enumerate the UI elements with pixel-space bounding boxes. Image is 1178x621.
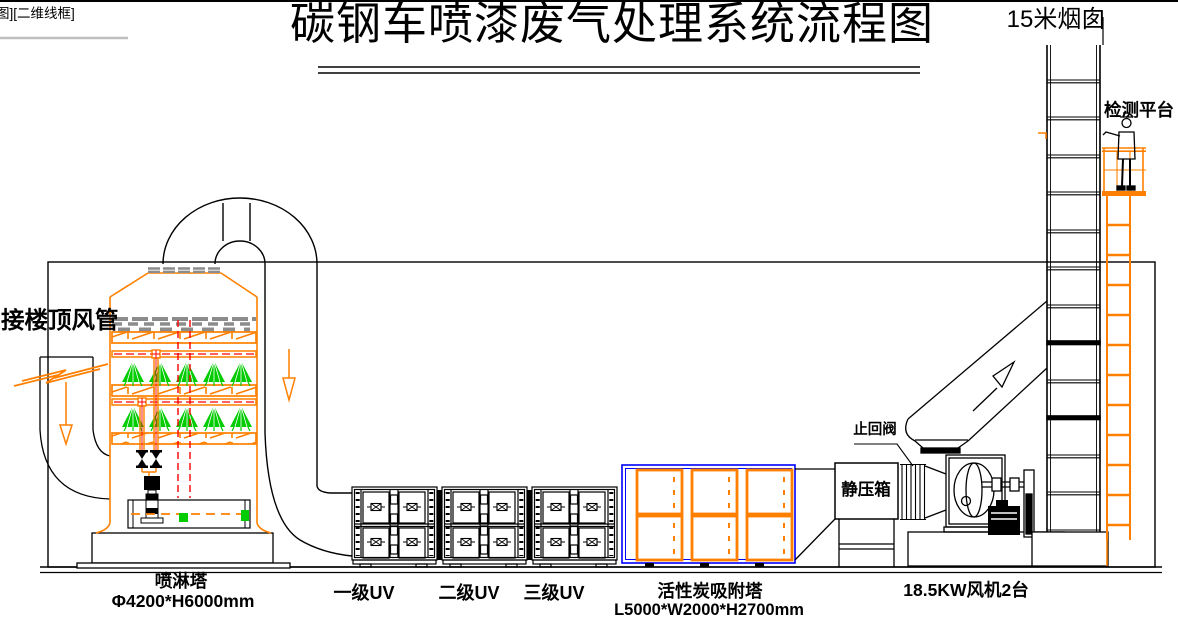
flow-arrow-down-inlet	[60, 382, 72, 444]
chimney	[1032, 17, 1108, 566]
viewport-corner-label: 图][二维线框]	[0, 7, 75, 21]
uv-stage-1-label: 一级UV	[333, 584, 394, 603]
plenum-label: 静压箱	[841, 482, 891, 499]
access-ladder	[1107, 196, 1130, 566]
carbon-tower-spec: L5000*W2000*H2700mm	[614, 602, 804, 619]
carbon-to-plenum-transition	[795, 469, 835, 560]
duct-break-symbol	[14, 364, 108, 386]
diagram-linework	[0, 0, 1178, 621]
inlet-duct-label: 接楼顶风管	[1, 308, 119, 333]
spray-tower	[77, 198, 317, 568]
uv-modules	[352, 487, 617, 567]
activated-carbon-tower	[622, 465, 795, 567]
diagram-title: 碳钢车喷漆废气处理系统流程图	[290, 1, 934, 48]
tower-outlet-bend	[163, 198, 317, 264]
stack-duct	[906, 301, 1047, 441]
plenum-box	[835, 463, 898, 567]
platform-label: 检测平台	[1104, 101, 1174, 119]
uv-module-2	[442, 487, 527, 567]
downcomer-duct	[265, 264, 352, 556]
uv-module-1	[352, 487, 437, 567]
cad-flow-diagram: 图][二维线框] 碳钢车喷漆废气处理系统流程图 15米烟囱 检测平台 接楼顶风管…	[0, 0, 1178, 621]
chimney-label: 15米烟囱	[1007, 7, 1106, 32]
uv-module-3	[532, 487, 617, 567]
spray-tower-name: 喷淋塔	[155, 572, 208, 590]
demister-band-top	[148, 269, 221, 272]
fan-outlet	[915, 440, 968, 453]
spray-tower-spec: Φ4200*H6000mm	[112, 592, 255, 610]
uv-stage-2-label: 二级UV	[438, 584, 499, 603]
check-valve-label: 止回阀	[853, 423, 897, 438]
inlet-duct	[14, 357, 110, 499]
demister-layers	[112, 319, 256, 330]
inspection-platform	[1102, 148, 1146, 566]
carbon-tower-name: 活性炭吸附塔	[658, 582, 763, 600]
flow-arrow-down-duct	[283, 349, 295, 400]
uv-stage-3-label: 三级UV	[523, 584, 584, 603]
fan-label: 18.5KW风机2台	[903, 581, 1028, 599]
plenum-stand	[839, 519, 894, 567]
